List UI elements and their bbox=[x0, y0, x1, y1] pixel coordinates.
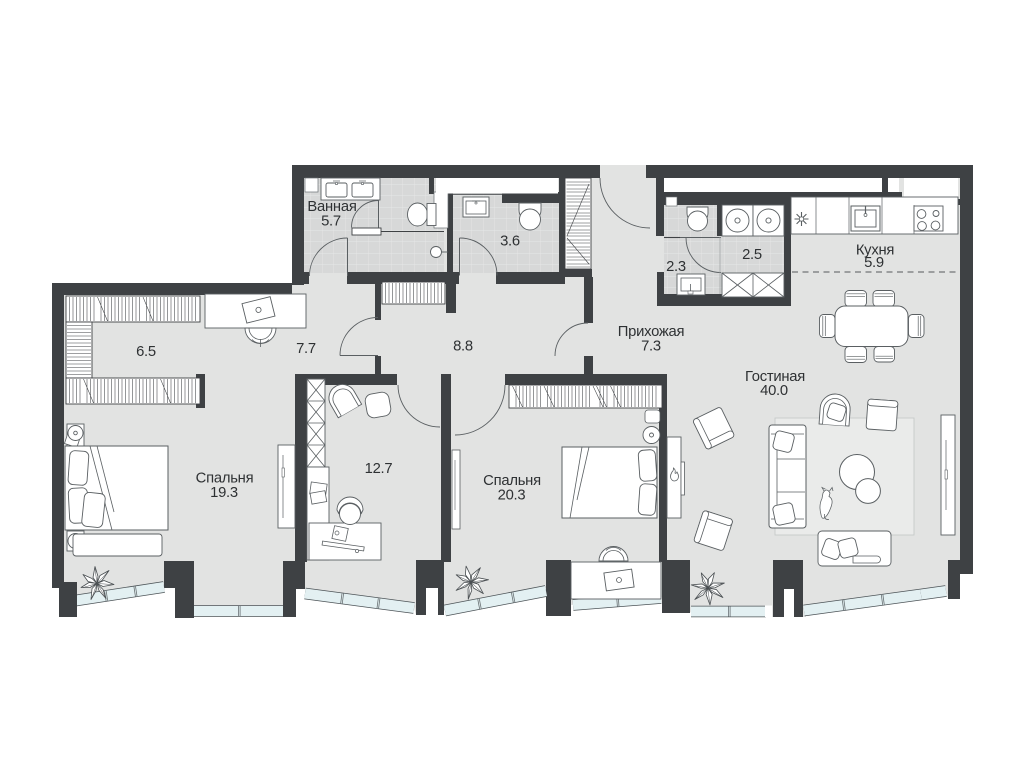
svg-text:6.5: 6.5 bbox=[136, 344, 156, 360]
svg-text:5.9: 5.9 bbox=[864, 255, 884, 271]
svg-text:8.8: 8.8 bbox=[453, 339, 473, 355]
svg-text:7.3: 7.3 bbox=[641, 339, 661, 355]
svg-text:19.3: 19.3 bbox=[210, 485, 238, 501]
svg-text:2.3: 2.3 bbox=[666, 259, 686, 275]
svg-text:5.7: 5.7 bbox=[321, 214, 341, 230]
svg-text:20.3: 20.3 bbox=[498, 488, 526, 504]
svg-text:3.6: 3.6 bbox=[500, 234, 520, 250]
svg-text:40.0: 40.0 bbox=[760, 383, 788, 399]
svg-text:12.7: 12.7 bbox=[365, 461, 393, 477]
svg-text:7.7: 7.7 bbox=[296, 341, 316, 357]
svg-text:2.5: 2.5 bbox=[742, 247, 762, 263]
